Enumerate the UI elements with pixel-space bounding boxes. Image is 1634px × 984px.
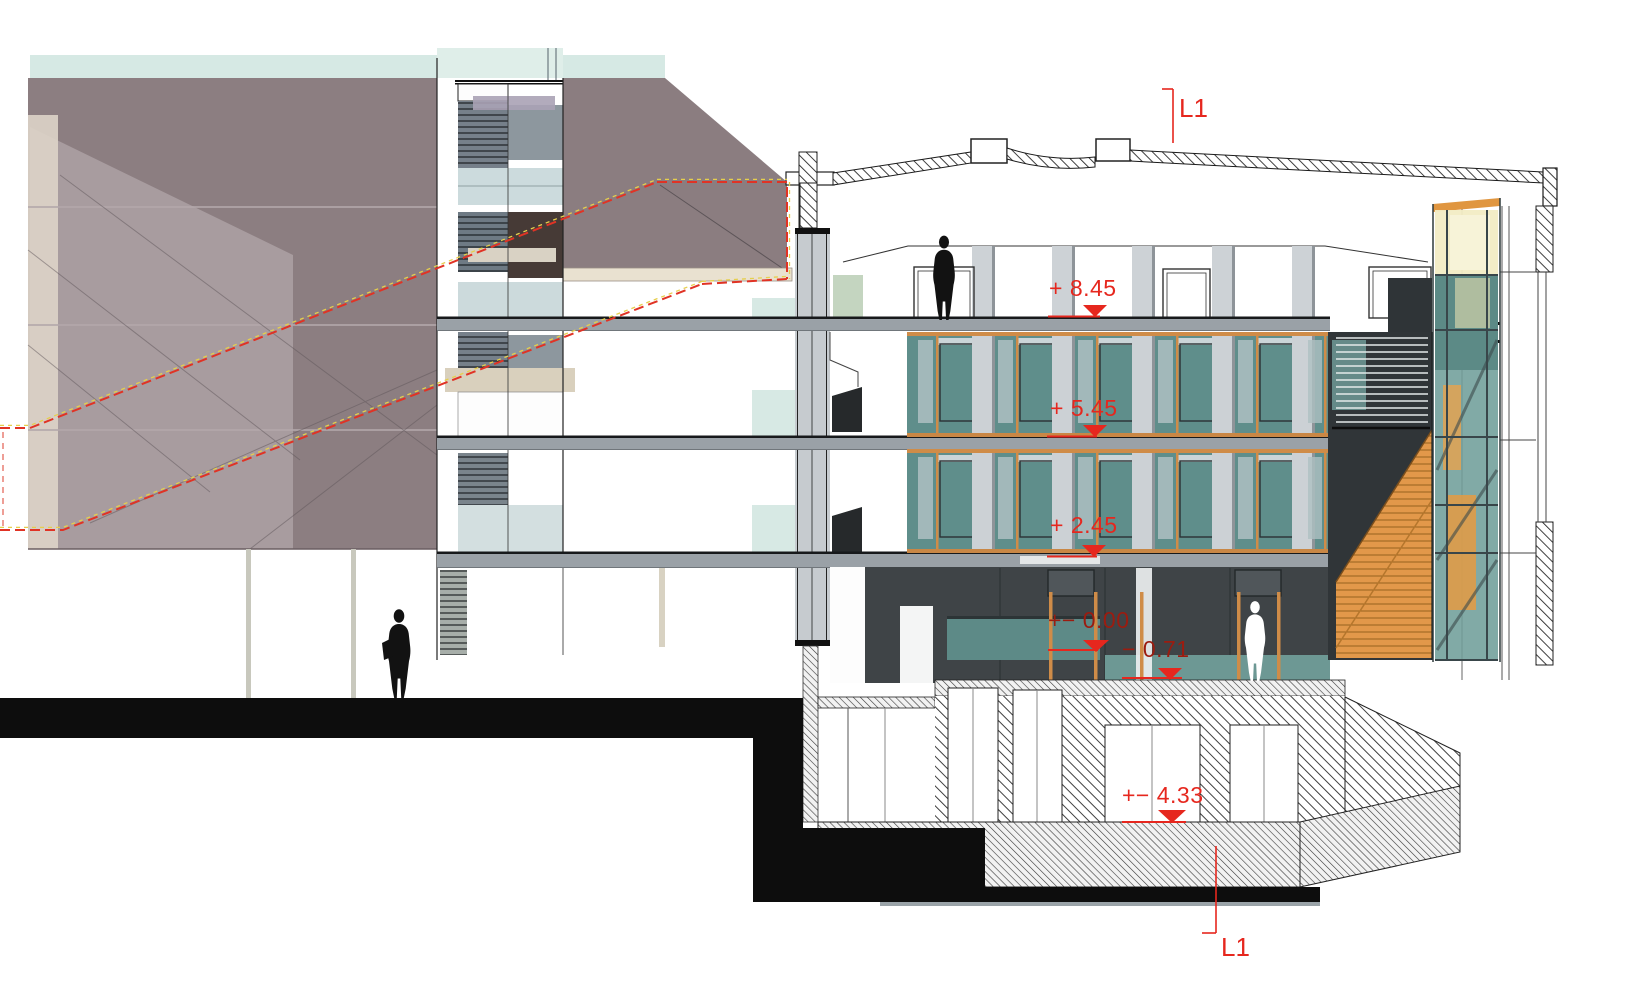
- slab-ground: [437, 552, 1330, 569]
- elevator-shaft: [1433, 198, 1500, 662]
- louver-stair-tower: [437, 58, 575, 660]
- elevator-cab: [1443, 385, 1461, 470]
- glass-partition: [1136, 568, 1152, 683]
- glass-balustrade: [833, 275, 863, 318]
- architectural-section-page: L1 L1 + 8.45 + 5.45 + 2.45 +− 0.00 − 0.7…: [0, 0, 1634, 984]
- sky-reflection-band: [30, 55, 665, 78]
- svg-text:− 0.71: − 0.71: [1122, 636, 1190, 662]
- section-mark-label: L1: [1179, 93, 1208, 123]
- facade-upper-wing: [563, 78, 787, 268]
- foundation-base-band: [985, 887, 1320, 902]
- svg-text:+ 8.45: + 8.45: [1049, 275, 1117, 301]
- slab-545: [437, 436, 1330, 451]
- left-elevation-facade: [28, 48, 795, 698]
- pilotis-column: [351, 549, 356, 698]
- interior-door: [900, 606, 933, 683]
- facade-cream-strip: [28, 115, 58, 549]
- cut-wall-pier: [800, 183, 817, 228]
- right-wall-pier: [1536, 206, 1553, 272]
- roof-parapet: [1096, 139, 1130, 161]
- stair-treads-upper: [1336, 336, 1428, 426]
- right-wall-pier: [1536, 522, 1553, 665]
- street-ground-band: [0, 698, 803, 738]
- attic-columns: [972, 246, 1315, 318]
- shaft-cap-orange: [1433, 198, 1500, 212]
- svg-text:+− 4.33: +− 4.33: [1122, 782, 1204, 808]
- roof-parapet: [971, 139, 1007, 163]
- svg-text:+ 5.45: + 5.45: [1050, 395, 1118, 421]
- person-on-street-figure: [382, 609, 410, 698]
- below-grade-wall: [803, 646, 818, 822]
- stair-landing: [445, 368, 575, 392]
- pilotis-column: [246, 549, 251, 698]
- person-on-roof-terrace-figure: [933, 236, 955, 320]
- stair-core: [1328, 278, 1432, 660]
- svg-text:+− 0.00: +− 0.00: [1048, 607, 1130, 633]
- svg-text:+ 2.45: + 2.45: [1050, 512, 1118, 538]
- shadow-block: [832, 507, 862, 553]
- shadow-block: [832, 387, 862, 432]
- basement-ceiling-slab: [818, 697, 935, 708]
- atrium-post: [659, 567, 665, 647]
- building-section-drawing: L1 L1 + 8.45 + 5.45 + 2.45 +− 0.00 − 0.7…: [0, 0, 1634, 984]
- slab-845: [437, 317, 1330, 332]
- section-mark-label: L1: [1221, 932, 1250, 962]
- facade-cream-band: [563, 268, 792, 281]
- section-mark-l1-top: L1: [1162, 89, 1208, 143]
